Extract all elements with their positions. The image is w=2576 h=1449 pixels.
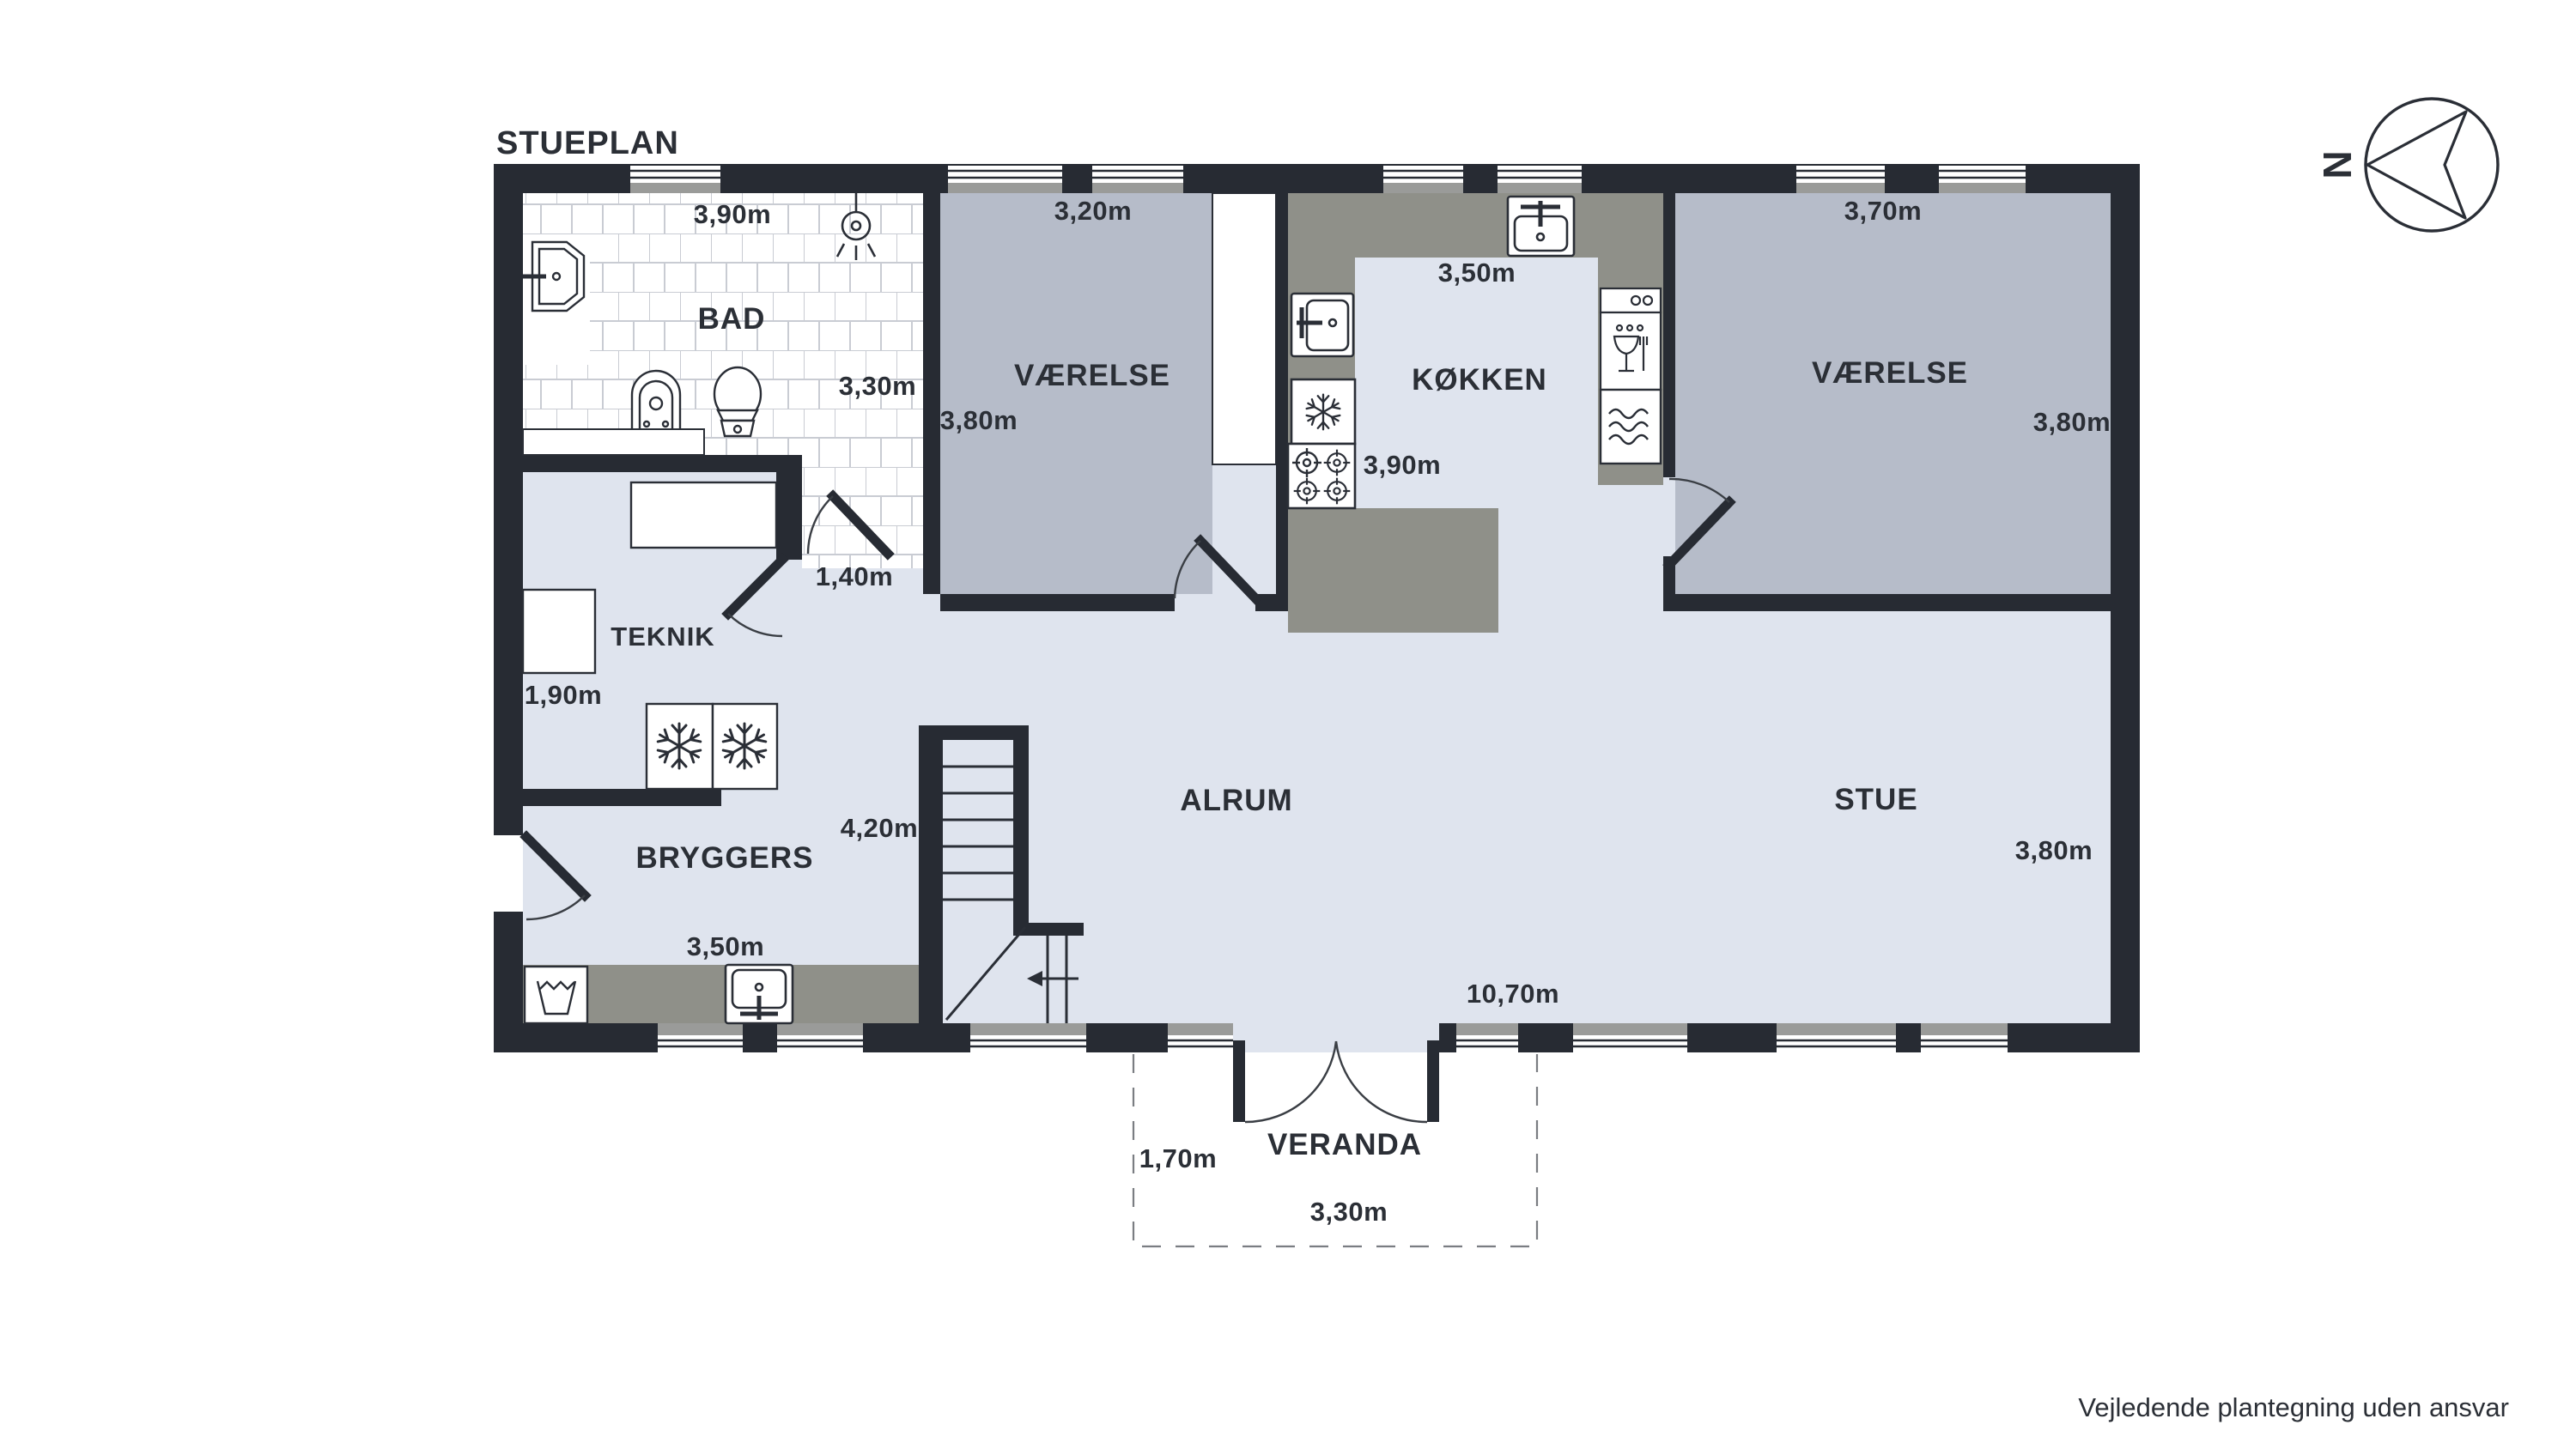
dim-veranda-width: 3,30m [1310,1197,1388,1228]
dim-bryggers-depth: 4,20m [841,813,918,844]
dim-teknik-width: 1,90m [525,680,602,711]
room-label-veranda: VERANDA [1267,1128,1422,1162]
dim-koekken-depth: 3,90m [1364,450,1441,481]
entrance-opening [494,835,523,912]
dim-koekken-width: 3,50m [1438,258,1516,288]
dim-bad-width: 3,90m [694,199,771,230]
floorplan-drawing [0,0,2576,1449]
washing-machine-icon [525,967,587,1023]
kitchen-side-sink-icon [1291,294,1353,356]
room-label-vaerelse2: VÆRELSE [1812,356,1968,391]
toilet-icon [632,371,680,436]
room-label-koekken: KØKKEN [1412,363,1547,397]
floorplan-page: STUEPLAN N 3,90m BAD 3,30m 3,20m VÆRELSE… [0,0,2576,1449]
dim-veranda-depth: 1,70m [1139,1143,1217,1174]
equipment-box [523,590,595,673]
dim-vaerelse1-width: 3,20m [1054,196,1132,227]
dim-bryggers-width: 3,50m [687,931,764,962]
oven-icon [1601,390,1661,464]
kitchen-sink-icon [1508,197,1574,256]
room-label-bryggers: BRYGGERS [635,841,813,876]
room-label-bad: BAD [698,302,766,336]
room-label-teknik: TEKNIK [611,621,714,652]
wardrobe-icon [1212,193,1276,464]
stove-icon [1288,444,1355,508]
bathroom-ledge [523,429,704,455]
veranda-door-leaf [1233,1040,1245,1122]
north-compass-icon [2366,99,2498,231]
worktop [631,482,776,548]
page-title: STUEPLAN [496,125,679,162]
dim-vaerelse2-width: 3,70m [1844,196,1922,227]
room-label-vaerelse1: VÆRELSE [1014,359,1170,393]
compass-north-letter: N [2314,150,2360,179]
dim-vaerelse1-depth: 3,80m [940,405,1018,436]
dim-stue-depth: 3,80m [2015,835,2093,866]
veranda-door-arc [1245,1041,1336,1122]
room-label-stue: STUE [1834,783,1917,817]
veranda-door-leaf [1427,1040,1439,1122]
dishwasher-icon [1601,288,1661,390]
floor-vaerelse-1 [940,193,1212,594]
dim-bad-depth: 3,30m [839,371,916,402]
veranda-door-arc [1336,1041,1427,1122]
bathroom-sink-icon [523,242,584,311]
bryggers-sink-icon [726,965,793,1023]
dim-vaerelse2-depth: 3,80m [2033,407,2111,438]
dim-hall-width: 1,40m [816,561,893,592]
disclaimer-text: Vejledende plantegning uden ansvar [2078,1392,2509,1423]
dim-house-width: 10,70m [1467,979,1559,1009]
room-label-alrum: ALRUM [1180,784,1292,818]
floor-vaerelse-2 [1675,193,2111,594]
